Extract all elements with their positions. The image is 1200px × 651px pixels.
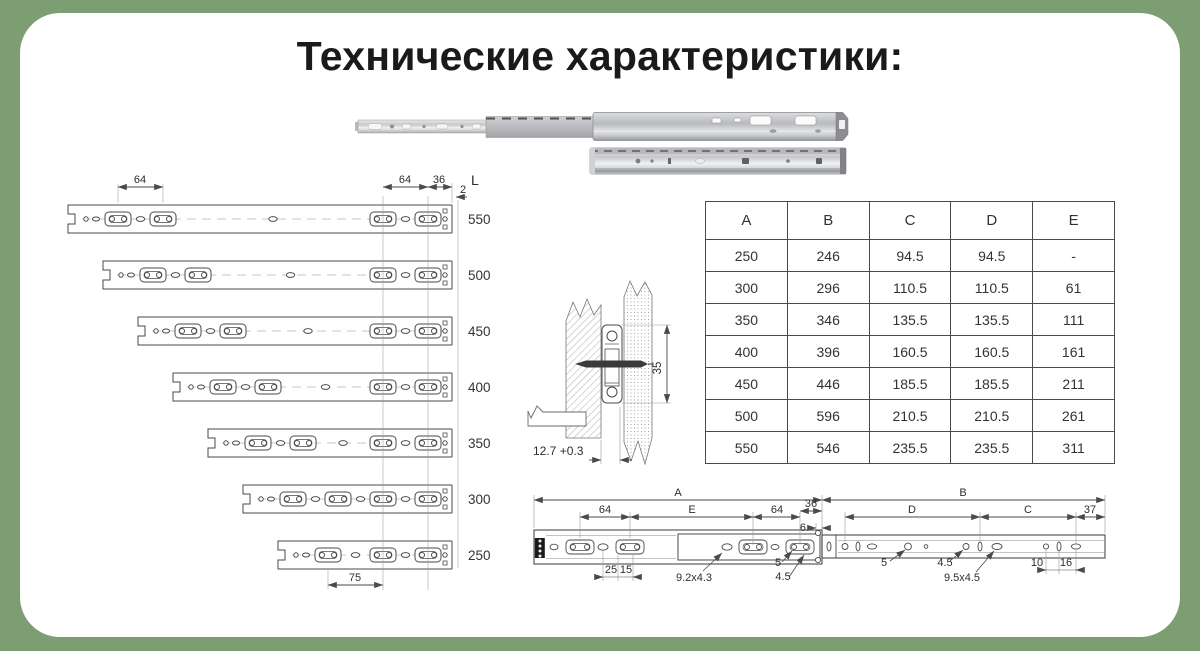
dim-75-label: 75 — [349, 572, 361, 584]
length-column-header: L — [471, 172, 479, 188]
table-row: 300296110.5110.561 — [706, 272, 1115, 304]
table-cell: 300 — [706, 272, 788, 304]
dim-5a-label: 5 — [775, 557, 781, 569]
dim-36-label: 36 — [433, 174, 445, 186]
table-cell: 400 — [706, 336, 788, 368]
table-cell: 350 — [706, 304, 788, 336]
table-cell: 546 — [787, 432, 869, 464]
rail-300 — [243, 485, 452, 513]
table-cell: 110.5 — [951, 272, 1033, 304]
table-cell: 250 — [706, 240, 788, 272]
page-title: Технические характеристики: — [0, 33, 1200, 80]
dimension-drawing: A B 64 E 64 36 6 D C 37 25 15 9.2x4.3 5 … — [528, 486, 1113, 598]
table-cell: 235.5 — [869, 432, 951, 464]
rail-length-label: 350 — [468, 436, 491, 451]
table-cell: 550 — [706, 432, 788, 464]
dim-36-label: 36 — [805, 498, 817, 510]
page-background: Технические характеристики: — [0, 0, 1200, 651]
spec-table-head: ABCDE — [706, 202, 1115, 240]
rail-length-label: 550 — [468, 212, 491, 227]
rail-400 — [173, 373, 452, 401]
mounting-cross-section: 35 12.7 +0.3 — [520, 268, 700, 483]
rail-drawings — [68, 205, 452, 569]
dim-64-right-label: 64 — [399, 174, 411, 186]
dim-A-label: A — [674, 487, 682, 499]
dim-127-label: 12.7 +0.3 — [533, 444, 584, 458]
table-cell: 94.5 — [951, 240, 1033, 272]
table-row: 500596210.5210.5261 — [706, 400, 1115, 432]
rail-length-label: 300 — [468, 492, 491, 507]
dim-E-label: E — [688, 504, 695, 516]
dim-2-label: 2 — [460, 184, 466, 196]
rail-length-label: 450 — [468, 324, 491, 339]
dim-92x43-label: 9.2x4.3 — [676, 572, 712, 584]
table-cell: 450 — [706, 368, 788, 400]
rail-length-label: 250 — [468, 548, 491, 563]
dim-25-label: 25 — [605, 564, 617, 576]
table-cell: 296 — [787, 272, 869, 304]
dim-95x45-label: 9.5x4.5 — [944, 572, 980, 584]
table-row: 25024694.594.5- — [706, 240, 1115, 272]
table-cell: 111 — [1033, 304, 1115, 336]
table-cell: 185.5 — [951, 368, 1033, 400]
dim-45a-label: 4.5 — [775, 571, 790, 583]
table-cell: 110.5 — [869, 272, 951, 304]
table-cell: 311 — [1033, 432, 1115, 464]
table-cell: 160.5 — [951, 336, 1033, 368]
rail-350 — [208, 429, 452, 457]
rail-250 — [278, 541, 452, 569]
table-cell: 500 — [706, 400, 788, 432]
table-cell: 346 — [787, 304, 869, 336]
table-cell: 135.5 — [951, 304, 1033, 336]
rail-length-label: 400 — [468, 380, 491, 395]
table-cell: 185.5 — [869, 368, 951, 400]
dim-10-label: 10 — [1031, 557, 1043, 569]
rail-450 — [138, 317, 452, 345]
dim-5b-label: 5 — [881, 557, 887, 569]
table-header-row: ABCDE — [706, 202, 1115, 240]
table-cell: 396 — [787, 336, 869, 368]
dim-D-label: D — [908, 504, 916, 516]
rail-500 — [103, 261, 452, 289]
spec-table-body: 25024694.594.5-300296110.5110.5613503461… — [706, 240, 1115, 464]
table-row: 550546235.5235.5311 — [706, 432, 1115, 464]
table-cell: 211 — [1033, 368, 1115, 400]
table-cell: 446 — [787, 368, 869, 400]
column-header: A — [706, 202, 788, 240]
table-cell: 61 — [1033, 272, 1115, 304]
column-header: D — [951, 202, 1033, 240]
table-cell: 210.5 — [951, 400, 1033, 432]
table-row: 450446185.5185.5211 — [706, 368, 1115, 400]
drawer-panel — [624, 281, 652, 464]
table-cell: 161 — [1033, 336, 1115, 368]
column-header: B — [787, 202, 869, 240]
spec-table: ABCDE 25024694.594.5-300296110.5110.5613… — [705, 201, 1115, 464]
column-header: E — [1033, 202, 1115, 240]
rail-length-labels: 550500450400350300250 — [468, 212, 491, 563]
dim-35-label: 35 — [652, 362, 664, 375]
table-cell: 596 — [787, 400, 869, 432]
table-cell: 261 — [1033, 400, 1115, 432]
table-cell: - — [1033, 240, 1115, 272]
table-cell: 94.5 — [869, 240, 951, 272]
table-cell: 135.5 — [869, 304, 951, 336]
dim-37-label: 37 — [1084, 504, 1096, 516]
table-cell: 160.5 — [869, 336, 951, 368]
dim-64-left-label: 64 — [134, 174, 146, 186]
table-row: 350346135.5135.5111 — [706, 304, 1115, 336]
dim-45b-label: 4.5 — [937, 557, 952, 569]
column-header: C — [869, 202, 951, 240]
rail-length-label: 500 — [468, 268, 491, 283]
dim-15-label: 15 — [620, 564, 632, 576]
dim-6-label: 6 — [800, 522, 806, 534]
dim-16-label: 16 — [1060, 557, 1072, 569]
dim-B-label: B — [959, 487, 966, 499]
rail-550 — [68, 205, 452, 233]
dim-C-label: C — [1024, 504, 1032, 516]
mounting-screw — [575, 361, 652, 368]
table-cell: 235.5 — [951, 432, 1033, 464]
slide-extended-photo — [355, 113, 848, 141]
dim-64a-label: 64 — [599, 504, 611, 516]
dim-64b-label: 64 — [771, 504, 783, 516]
table-cell: 210.5 — [869, 400, 951, 432]
table-row: 400396160.5160.5161 — [706, 336, 1115, 368]
drawer-member — [822, 535, 1105, 558]
length-diagram: 550500450400350300250 64 64 36 L 2 75 — [55, 168, 500, 600]
slide-closed-photo — [590, 148, 846, 174]
table-cell: 246 — [787, 240, 869, 272]
